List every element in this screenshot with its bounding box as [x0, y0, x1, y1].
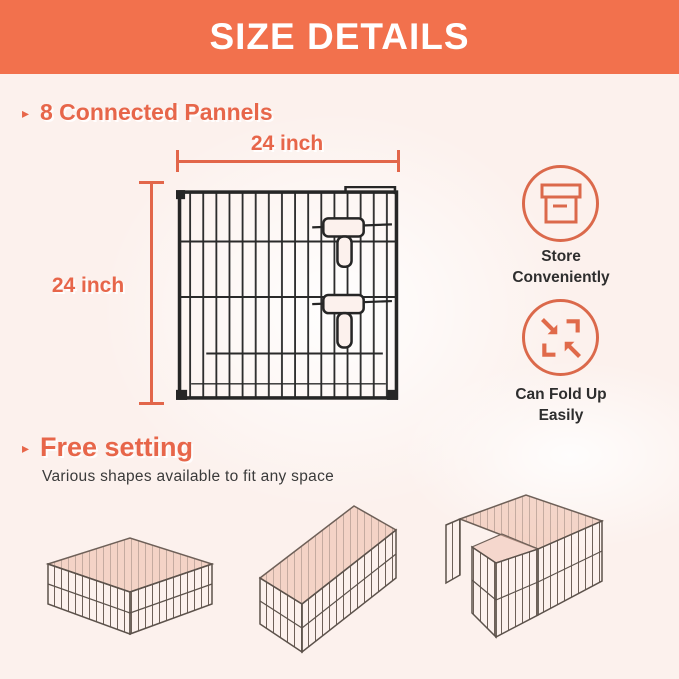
fold-arrows-icon [536, 313, 586, 363]
free-section-subtitle: Various shapes available to fit any spac… [42, 468, 334, 486]
page-title: SIZE DETAILS [209, 16, 469, 58]
fold-label-line2: Easily [476, 405, 646, 426]
height-dimension-tick-bottom [139, 402, 164, 405]
triangle-bullet-icon: ▸ [22, 106, 29, 120]
store-label-line1: Store [476, 246, 646, 267]
size-details-infographic: { "header": { "title": "SIZE DETAILS" },… [0, 0, 679, 679]
fold-feature-label: Can Fold Up Easily [476, 384, 646, 426]
width-dimension-tick-right [397, 150, 400, 172]
fold-feature-circle [522, 299, 599, 376]
width-dimension-tick-left [176, 150, 179, 172]
l-shaped-pen-image [438, 487, 608, 651]
wire-panel-image [176, 186, 400, 402]
header-banner: SIZE DETAILS [0, 0, 679, 74]
height-dimension-tick-top [139, 181, 164, 184]
rectangle-pen-image [252, 494, 404, 654]
store-label-line2: Conveniently [476, 267, 646, 288]
store-feature-circle [522, 165, 599, 242]
square-pen-image [40, 520, 220, 638]
width-dimension-label: 24 inch [222, 132, 352, 156]
storage-box-icon [536, 182, 586, 226]
panels-section-heading: 8 Connected Pannels [40, 99, 273, 126]
height-dimension-label: 24 inch [32, 274, 144, 298]
free-section-heading: Free setting [40, 432, 193, 463]
height-dimension-line [150, 181, 153, 405]
triangle-bullet-icon: ▸ [22, 441, 29, 455]
width-dimension-line [176, 160, 400, 163]
fold-label-line1: Can Fold Up [476, 384, 646, 405]
store-feature-label: Store Conveniently [476, 246, 646, 288]
